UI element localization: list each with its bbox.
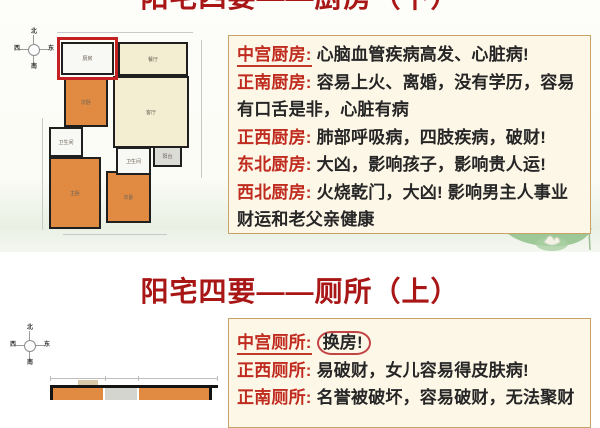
dimension-tick — [138, 376, 139, 381]
dimension-line — [201, 40, 202, 178]
room-label: 阳台 — [162, 153, 172, 160]
room-balcony: 阳台 — [153, 146, 182, 167]
warning-entry: 东北厨房: 大凶，影响孩子，影响贵人运! — [237, 151, 582, 179]
slide-kitchen: 阳宅四要——厨房（下） 北 南 西 东 餐厅 客厅 次卧 卫生间 主卧 次 — [0, 0, 600, 252]
kitchen-warnings-box: 中宫厨房: 心脑血管疾病高发、心脏病!正南厨房: 容易上火、离婚，没有学历，容易… — [228, 35, 591, 234]
dimension-tick — [105, 376, 106, 381]
plan-wall — [50, 385, 53, 400]
room-label: 次卧 — [81, 99, 91, 106]
dimension-line — [42, 118, 43, 230]
slide-toilet: 阳宅四要——厕所（上） 北 南 西 东 中宫厕所: 换房!正西厕所: 易破财，女… — [0, 264, 600, 400]
room-master-bedroom: 主卧 — [49, 157, 101, 229]
entry-text: 肺部呼吸病，四肢疾病，破财! — [317, 128, 546, 147]
warning-entry: 正西厕所: 易破财，女儿容易得皮肤病! — [237, 357, 582, 385]
room-label: 次卧 — [123, 194, 133, 201]
entry-text: 易破财，女儿容易得皮肤病! — [317, 361, 529, 380]
entry-label: 中宫厨房: — [237, 45, 312, 67]
compass-north-label: 北 — [25, 325, 35, 332]
room-label: 餐厅 — [148, 56, 158, 63]
kitchen-highlight-box — [57, 37, 118, 80]
floorplan-kitchen: 餐厅 客厅 次卧 卫生间 主卧 次卧 卫生间 阳台 厨房 — [15, 30, 223, 238]
room-partial — [139, 388, 209, 400]
slide2-title: 阳宅四要——厕所（上） — [0, 270, 600, 310]
room-dining: 餐厅 — [118, 42, 188, 76]
floorplan-toilet-partial — [50, 378, 218, 400]
toilet-warnings-box: 中宫厕所: 换房!正西厕所: 易破财，女儿容易得皮肤病!正南厕所: 名誉被破坏，… — [228, 318, 591, 428]
entry-label: 西北厨房: — [237, 183, 312, 202]
entry-text: 换房! — [317, 331, 371, 355]
room-bedroom-2: 次卧 — [64, 78, 108, 127]
dimension-line — [57, 32, 193, 33]
warning-entry: 正南厕所: 名誉被破坏，容易破财，无法聚财 — [237, 384, 582, 412]
entry-label: 正西厕所: — [237, 361, 312, 380]
room-label: 卫生间 — [58, 139, 73, 146]
entry-text: 心脑血管疾病高发、心脏病! — [317, 45, 529, 64]
dimension-tick — [50, 376, 51, 381]
room-partial — [53, 388, 103, 400]
entry-text: 大凶，影响孩子，影响贵人运! — [317, 155, 546, 174]
compass-center — [24, 340, 36, 352]
entry-text: 名誉被破坏，容易破财，无法聚财 — [317, 388, 575, 407]
warning-entry: 西北厨房: 火烧乾门，大凶! 影响男主人事业财运和老父亲健康 — [237, 179, 582, 234]
room-living: 客厅 — [113, 76, 189, 148]
entry-label: 正南厨房: — [237, 73, 312, 92]
dimension-line — [63, 234, 167, 235]
entry-label: 东北厨房: — [237, 155, 312, 174]
page: { "slide1": { "title": "阳宅四要——厨房（下）", "e… — [0, 0, 600, 400]
entry-label: 正南厕所: — [237, 388, 312, 407]
warning-entry: 中宫厕所: 换房! — [237, 329, 582, 357]
dimension-tick — [217, 376, 218, 381]
entry-label: 正西厨房: — [237, 128, 312, 147]
room-label: 主卧 — [70, 190, 80, 197]
plan-wall — [209, 385, 212, 400]
warning-entry: 正南厨房: 容易上火、离婚，没有学历，容易有口舌是非，心脏有病 — [237, 69, 582, 124]
compass-west-label: 西 — [8, 342, 18, 349]
room-partial — [105, 388, 137, 400]
compass-icon: 北 南 西 东 — [12, 328, 48, 364]
compass-south-label: 南 — [25, 360, 35, 367]
room-label: 卫生间 — [126, 158, 141, 165]
warning-entry: 中宫厨房: 心脑血管疾病高发、心脏病! — [237, 41, 582, 69]
room-label: 客厅 — [146, 109, 156, 116]
entry-label: 中宫厕所: — [237, 333, 312, 355]
warning-entry: 正西厨房: 肺部呼吸病，四肢疾病，破财! — [237, 124, 582, 152]
room-bathroom-1: 卫生间 — [49, 127, 83, 157]
slide1-title-clipped: 阳宅四要——厨房（下） — [0, 0, 600, 16]
room-bathroom-2: 卫生间 — [116, 147, 151, 175]
dimension-line — [50, 378, 218, 379]
compass-east-label: 东 — [42, 342, 52, 349]
room-bedroom-3: 次卧 — [106, 171, 151, 223]
